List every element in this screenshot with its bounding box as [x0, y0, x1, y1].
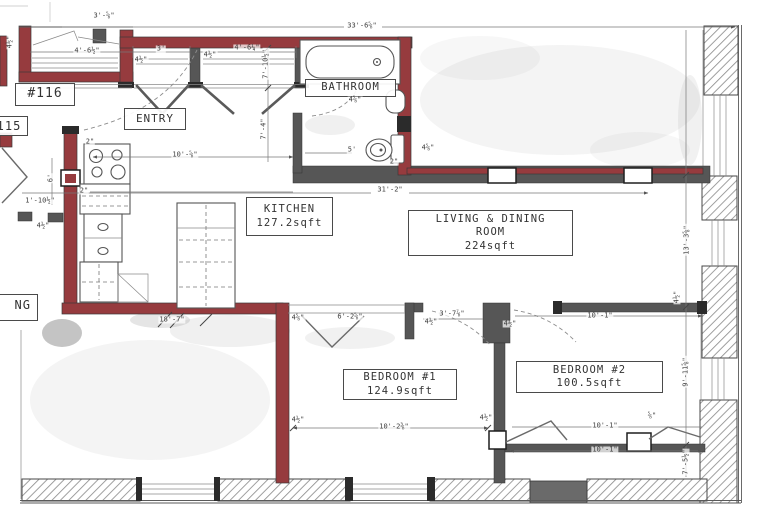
room-label-partial-ng: NG [0, 294, 38, 321]
bedroom2-area: 100.5sqft [517, 377, 662, 390]
room-label-unit-116: #116 [15, 83, 75, 106]
bathroom-fixtures [300, 40, 405, 163]
dishwasher [80, 184, 130, 214]
room-label-unit-115: 115 [0, 116, 28, 136]
living-area: 224sqft [409, 240, 572, 253]
floor-plan: #116 115 ENTRY BATHROOM KITCHEN 127.2sqf… [0, 0, 760, 505]
bifold-door-unit115 [2, 148, 27, 203]
room-label-living-dining: LIVING & DINING ROOM 224sqft [408, 210, 573, 256]
bedroom1-door-arc [432, 311, 491, 346]
kitchen-fixtures [80, 144, 235, 308]
room-label-bedroom-2: BEDROOM #2 100.5sqft [516, 361, 663, 393]
room-label-kitchen: KITCHEN 127.2sqft [246, 197, 333, 236]
stove [84, 144, 130, 184]
kitchen-area: 127.2sqft [247, 217, 332, 230]
bedroom1-area: 124.9sqft [344, 385, 456, 398]
room-label-bathroom: BATHROOM [305, 79, 396, 97]
masonry-pier [530, 481, 587, 503]
bedroom2-closet-doors [506, 421, 700, 442]
floor-plan-drawing [0, 0, 760, 505]
room-label-bedroom-1: BEDROOM #1 124.9sqft [343, 369, 457, 400]
room-label-entry: ENTRY [124, 108, 186, 130]
toilet [366, 135, 404, 163]
bedroom2-door-arc [514, 310, 576, 342]
